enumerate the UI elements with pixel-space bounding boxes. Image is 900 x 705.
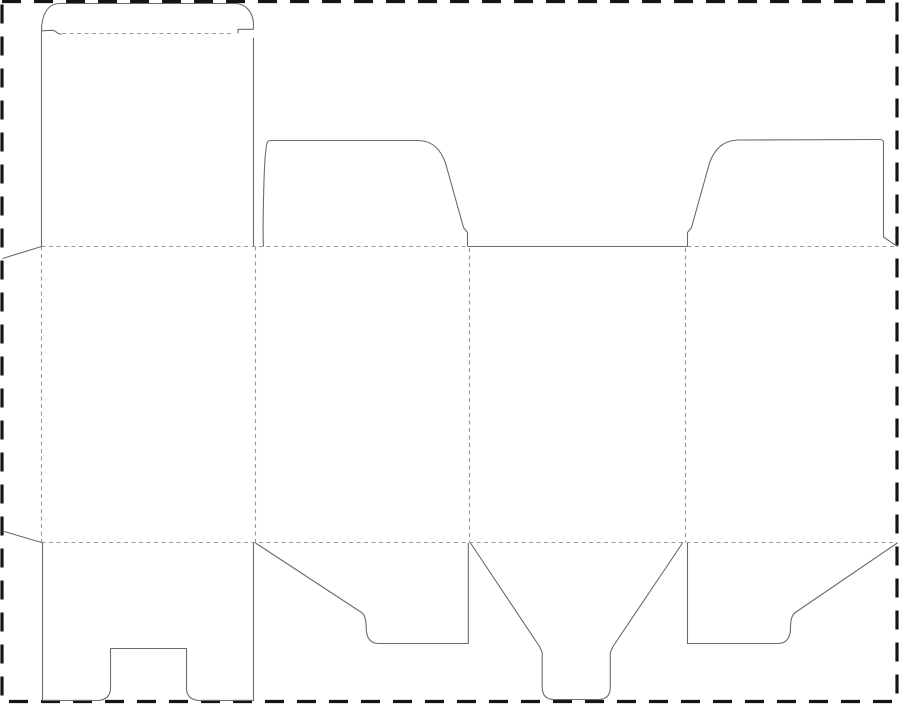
- cut-bottom-flap-angled-right: [688, 543, 898, 644]
- cut-bottom-flap-slotted: [43, 543, 254, 701]
- cut-glue-flap-top-diagonal: [3, 247, 42, 259]
- cut-bottom-snaplock-tongue: [471, 543, 683, 700]
- fold-lines-group: [42, 34, 898, 543]
- cut-tuck-lid-outer: [42, 4, 254, 247]
- dieline-page: [0, 0, 900, 705]
- cut-tuck-lid-slit-right: [238, 29, 254, 33]
- cut-lines-group: [3, 4, 898, 701]
- cut-glue-flap-bottom-diagonal: [3, 531, 42, 543]
- cut-tuck-lid-slit-left: [42, 30, 62, 34]
- cut-dust-flap-right: [688, 140, 898, 247]
- cut-bottom-flap-angled-left: [256, 543, 469, 644]
- cut-dust-flap-left: [263, 141, 467, 247]
- dieline-diagram: [0, 0, 900, 705]
- page-border: [2, 2, 897, 702]
